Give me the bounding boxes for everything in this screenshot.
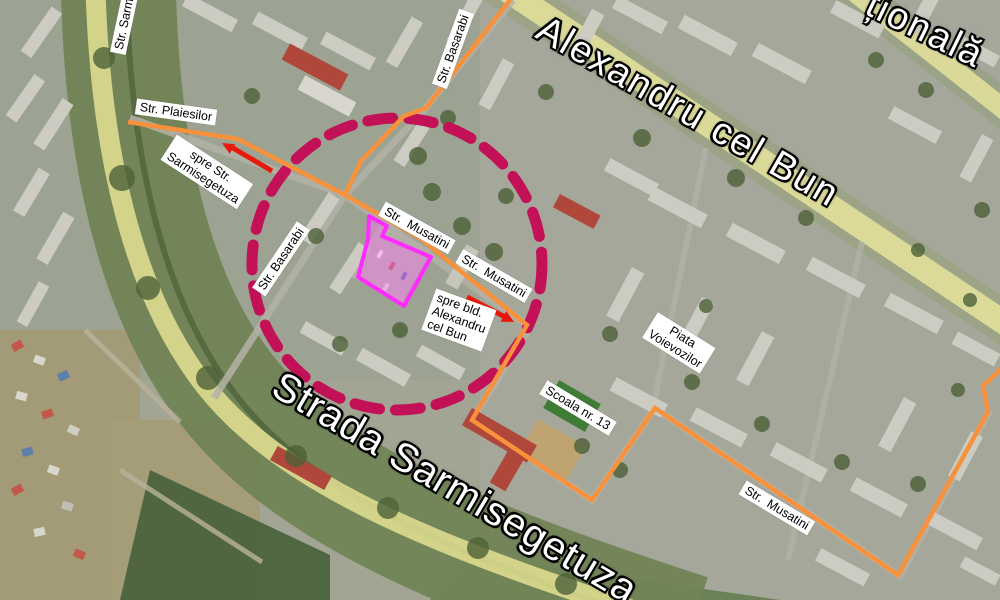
- direction-arrow-west: [222, 143, 272, 171]
- satellite-map[interactable]: Str. Sarm Str. Plaiesilor spre Str. Sarm…: [0, 0, 1000, 600]
- route-line-main: [128, 122, 1000, 575]
- route-line-north: [345, 0, 513, 195]
